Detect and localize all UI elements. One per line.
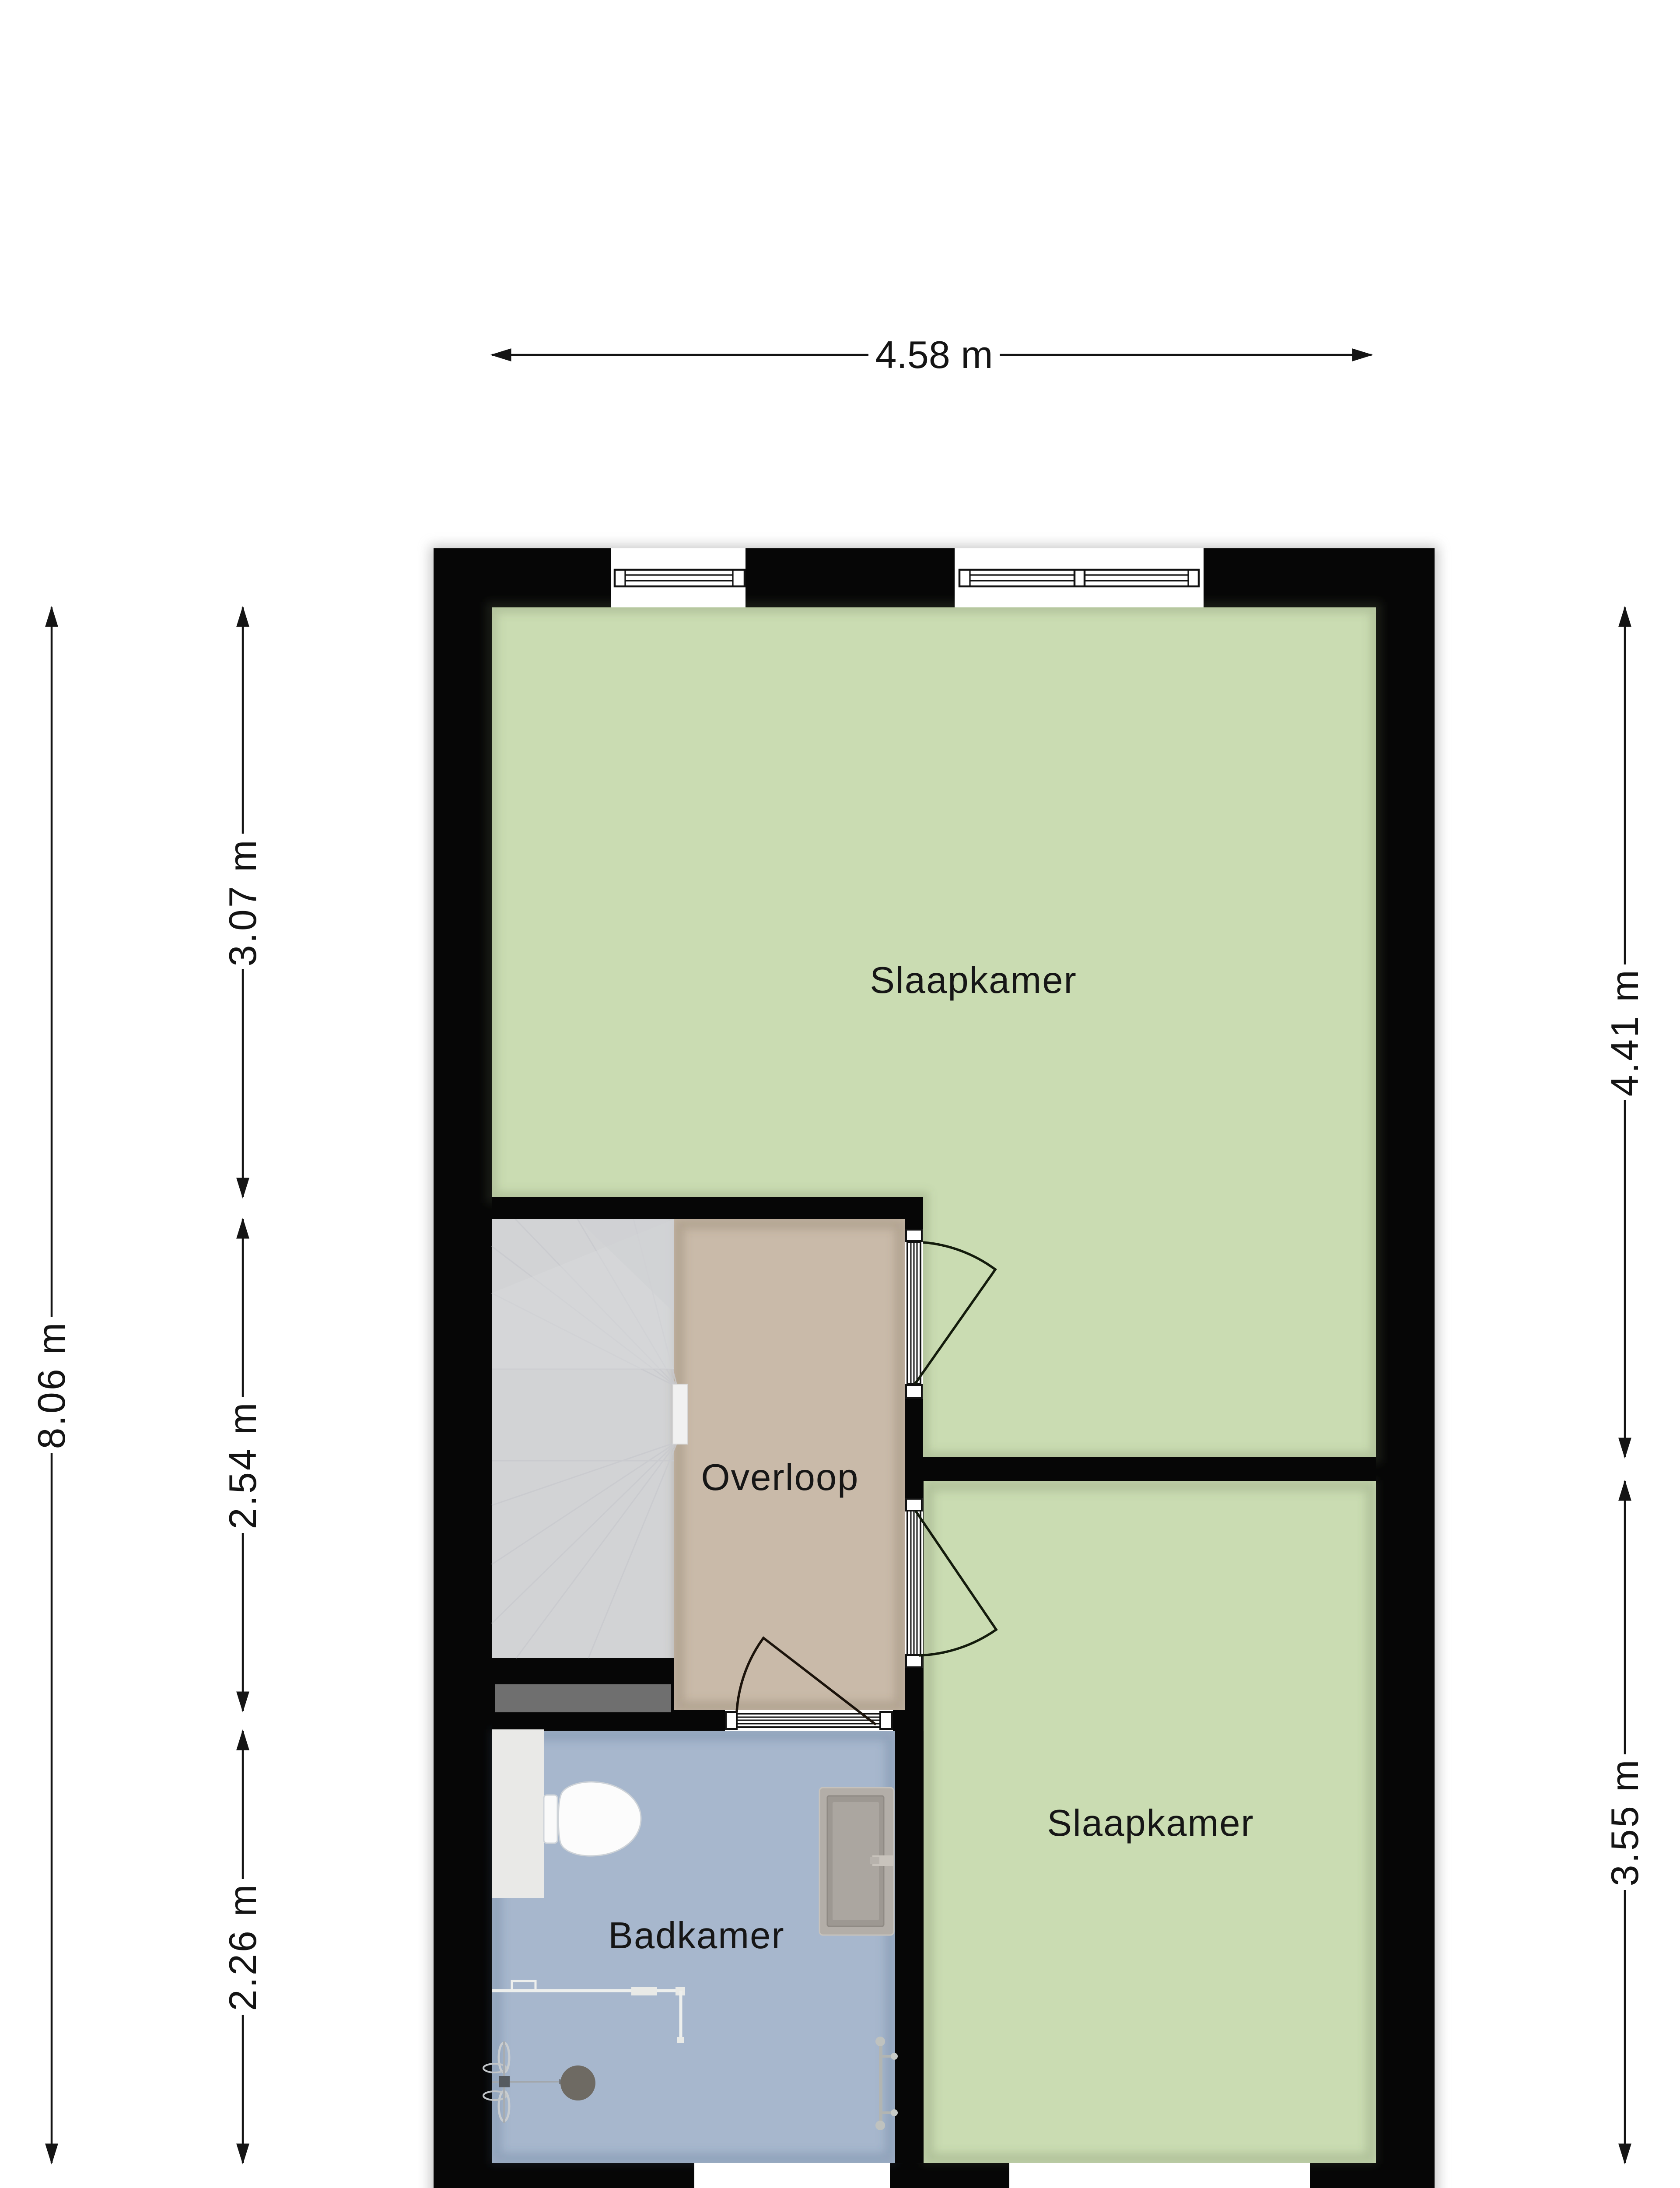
svg-text:2.26 m: 2.26 m (221, 1883, 264, 2011)
svg-text:Slaapkamer: Slaapkamer (1047, 1802, 1254, 1844)
svg-text:Overloop: Overloop (701, 1457, 859, 1498)
svg-text:4.41 m: 4.41 m (1603, 968, 1646, 1096)
svg-text:8.06 m: 8.06 m (30, 1321, 73, 1449)
svg-text:3.07 m: 3.07 m (221, 838, 264, 966)
svg-text:Slaapkamer: Slaapkamer (870, 960, 1077, 1001)
svg-text:Badkamer: Badkamer (608, 1915, 784, 1957)
svg-text:3.55 m: 3.55 m (1603, 1758, 1646, 1886)
svg-text:4.58 m: 4.58 m (875, 333, 993, 376)
svg-text:2.54 m: 2.54 m (221, 1401, 264, 1529)
